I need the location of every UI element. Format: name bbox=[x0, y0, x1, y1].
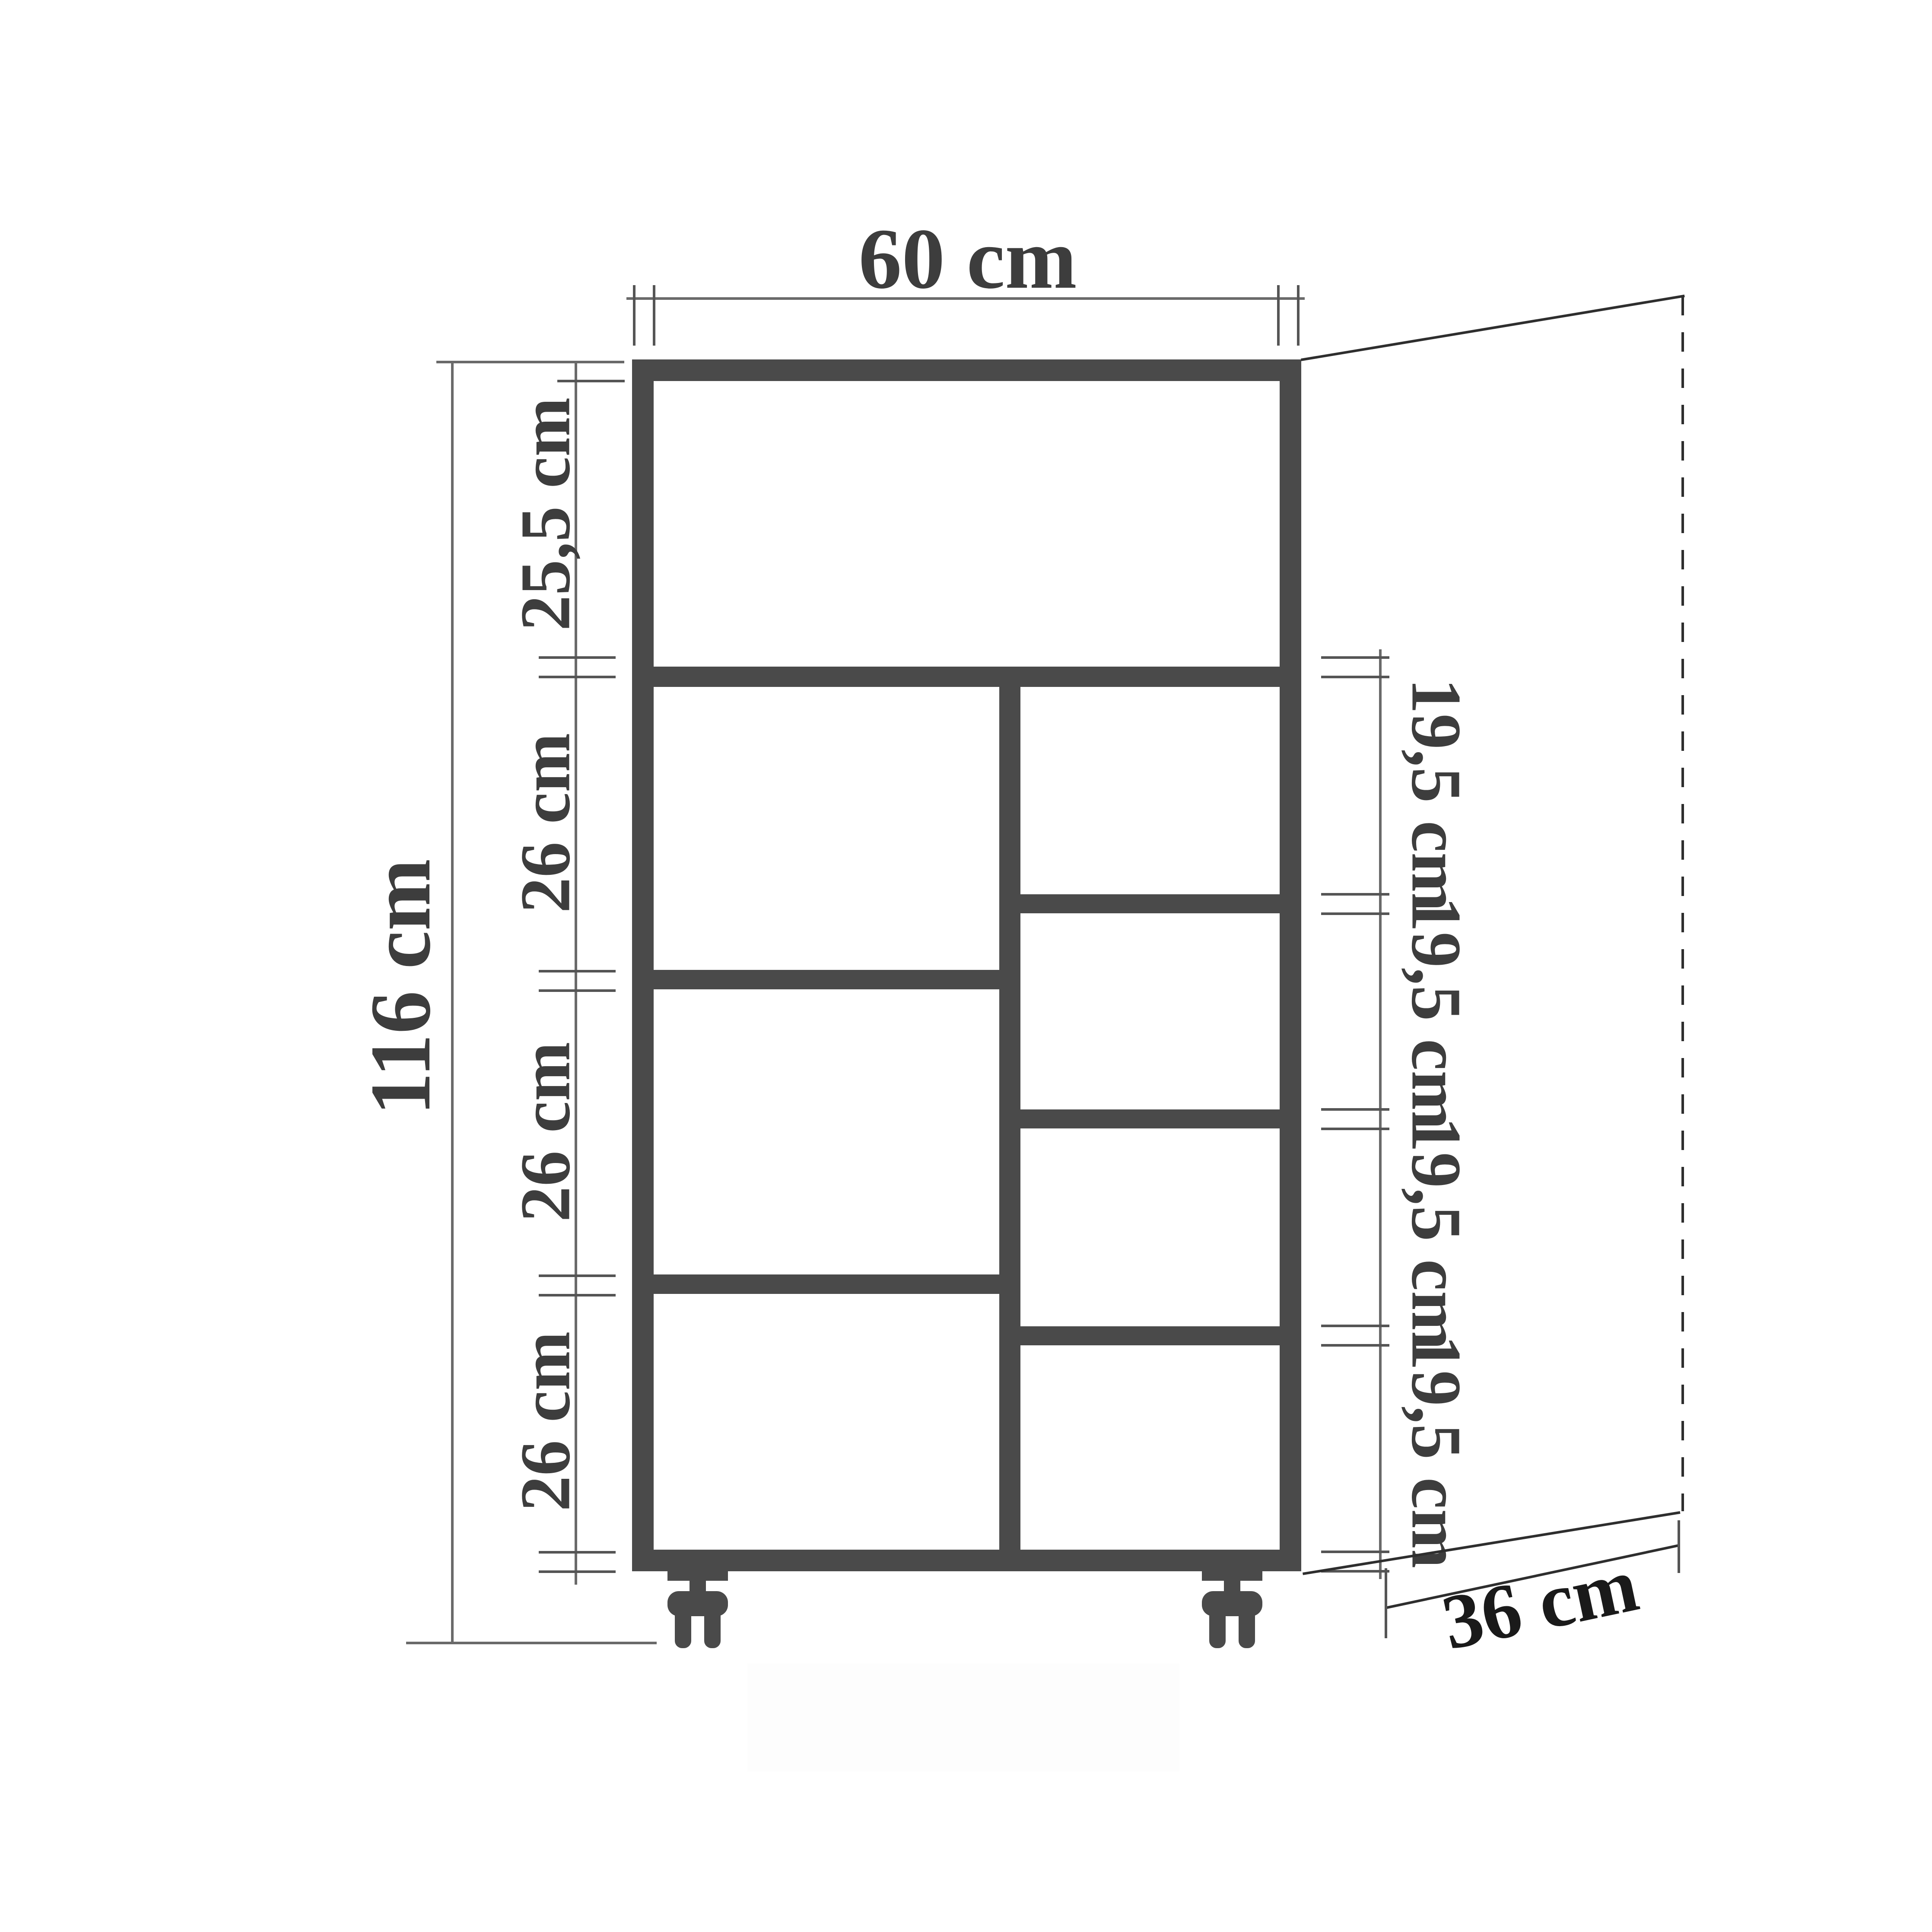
caster-leg-icon bbox=[704, 1614, 721, 1648]
left-shelf-2 bbox=[654, 1274, 999, 1294]
right-shelf-3 bbox=[1020, 1326, 1280, 1345]
left-shelf-1 bbox=[654, 970, 999, 989]
right-shelf-label-3: 19,5 cm bbox=[1401, 1117, 1472, 1350]
height-top-extension-line bbox=[436, 361, 624, 363]
caster-stem-icon bbox=[690, 1581, 706, 1592]
width-tick-mark bbox=[1277, 285, 1280, 346]
right-tick-mark bbox=[1321, 1108, 1389, 1111]
left-shelf-label-2: 26 cm bbox=[510, 1042, 581, 1222]
left-tick-mark bbox=[539, 989, 616, 992]
right-shelf-1 bbox=[1020, 894, 1280, 913]
left-tick-mark bbox=[539, 970, 616, 972]
left-tick-mark bbox=[539, 1274, 616, 1277]
caster-body-icon bbox=[1202, 1591, 1262, 1616]
right-tick-mark bbox=[1321, 1325, 1389, 1327]
top-compartment-label: 25,5 cm bbox=[510, 397, 581, 631]
right-compartment-dimension-line bbox=[1379, 649, 1382, 1579]
left-tick-mark bbox=[539, 656, 616, 659]
width-tick-mark bbox=[1297, 285, 1300, 346]
caster-leg-icon bbox=[1209, 1614, 1226, 1648]
right-tick-mark bbox=[1321, 893, 1389, 896]
right-shelf-label-2: 19,5 cm bbox=[1401, 896, 1472, 1130]
right-tick-mark bbox=[1321, 912, 1389, 915]
left-tick-mark bbox=[539, 1551, 616, 1554]
right-tick-mark bbox=[1321, 1128, 1389, 1130]
depth-tick-mark bbox=[1385, 1568, 1387, 1638]
top-shelf-divider bbox=[654, 667, 1280, 687]
depth-tick-mark bbox=[1678, 1520, 1680, 1573]
right-shelf-2 bbox=[1020, 1109, 1280, 1128]
back-edge-dashed-line bbox=[1681, 296, 1684, 1511]
left-tick-mark bbox=[539, 676, 616, 678]
right-tick-mark bbox=[1321, 676, 1389, 678]
caster-stem-icon bbox=[1224, 1581, 1240, 1592]
cabinet-outline bbox=[632, 359, 1301, 1571]
faint-background-area bbox=[747, 1663, 1179, 1771]
width-tick-mark bbox=[653, 285, 655, 346]
caster-plate-icon bbox=[667, 1571, 728, 1581]
top-depth-edge-line bbox=[1301, 295, 1685, 361]
left-shelf-label-1: 26 cm bbox=[510, 733, 581, 913]
right-shelf-label-4: 19,5 cm bbox=[1401, 1335, 1472, 1569]
left-shelf-label-3: 26 cm bbox=[510, 1331, 581, 1512]
right-tick-mark bbox=[1321, 1344, 1389, 1347]
height-bottom-extension-line bbox=[406, 1642, 657, 1644]
right-tick-mark bbox=[1321, 656, 1389, 659]
caster-plate-icon bbox=[1202, 1571, 1262, 1581]
right-shelf-label-1: 19,5 cm bbox=[1401, 678, 1472, 912]
left-tick-mark bbox=[557, 380, 625, 382]
width-dimension-label: 60 cm bbox=[858, 216, 1077, 302]
caster-wheel-left bbox=[667, 1571, 728, 1648]
caster-body-icon bbox=[667, 1591, 728, 1616]
drawing-canvas: 60 cm 116 cm 25,5 cm 26 cm 26 cm 26 cm 1… bbox=[0, 0, 1932, 1932]
left-tick-mark bbox=[539, 1570, 616, 1573]
center-vertical-divider bbox=[999, 687, 1020, 1550]
caster-leg-icon bbox=[1239, 1614, 1255, 1648]
width-tick-mark bbox=[633, 285, 636, 346]
left-tick-mark bbox=[539, 1294, 616, 1296]
caster-leg-icon bbox=[675, 1614, 691, 1648]
right-tick-mark bbox=[1321, 1551, 1389, 1553]
caster-wheel-right bbox=[1202, 1571, 1262, 1648]
height-dimension-label: 116 cm bbox=[358, 859, 444, 1115]
height-dimension-line bbox=[451, 361, 454, 1643]
